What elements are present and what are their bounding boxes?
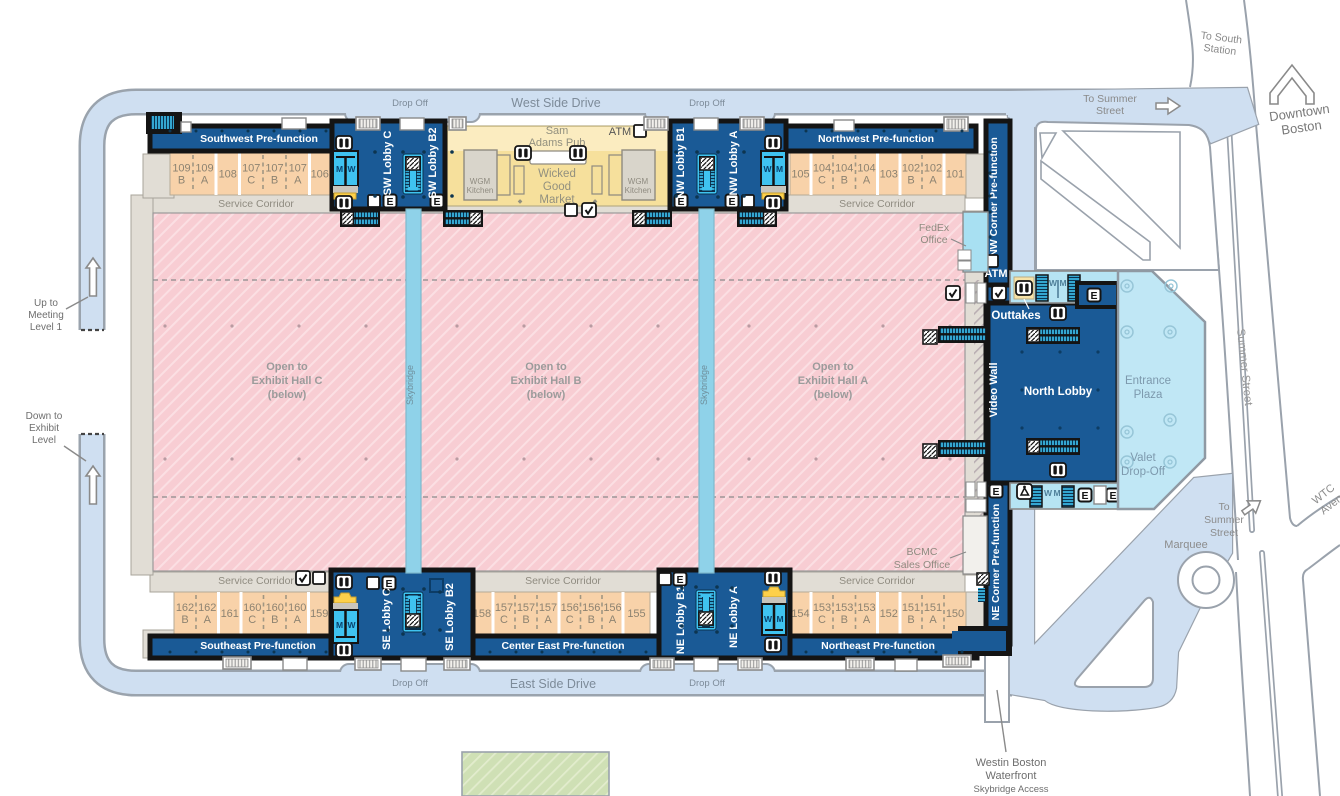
svg-text:107: 107: [242, 163, 260, 175]
svg-text:SW Lobby C: SW Lobby C: [382, 131, 394, 196]
svg-text:Office: Office: [920, 234, 947, 246]
svg-text:To: To: [1218, 501, 1229, 513]
svg-text:156: 156: [603, 602, 621, 614]
svg-text:Exhibit Hall A: Exhibit Hall A: [798, 375, 869, 387]
svg-text:Open to: Open to: [525, 361, 567, 373]
svg-text:Service Corridor: Service Corridor: [218, 198, 294, 210]
svg-text:158: 158: [473, 608, 491, 620]
svg-text:M: M: [1053, 488, 1060, 498]
svg-text:Service Corridor: Service Corridor: [839, 198, 915, 210]
svg-text:NE Lobby A: NE Lobby A: [728, 586, 740, 648]
svg-text:159: 159: [310, 608, 328, 620]
svg-text:Down to: Down to: [26, 411, 63, 422]
svg-text:Drop Off: Drop Off: [392, 98, 428, 109]
svg-text:B: B: [907, 175, 914, 187]
svg-text:150: 150: [946, 608, 964, 620]
svg-text:Northwest Pre-function: Northwest Pre-function: [818, 133, 934, 145]
svg-text:(below): (below): [814, 389, 853, 401]
svg-text:Summer: Summer: [1204, 514, 1244, 526]
svg-text:161: 161: [221, 608, 239, 620]
svg-text:E: E: [1109, 490, 1116, 502]
svg-text:156: 156: [582, 602, 600, 614]
svg-text:101: 101: [946, 169, 964, 181]
svg-text:Drop Off: Drop Off: [689, 678, 725, 689]
svg-text:Kitchen: Kitchen: [467, 186, 494, 195]
svg-text:108: 108: [219, 169, 237, 181]
svg-text:Westin Boston: Westin Boston: [976, 757, 1047, 769]
svg-text:Drop Off: Drop Off: [689, 98, 725, 109]
svg-text:SE Lobby B2: SE Lobby B2: [444, 583, 456, 651]
svg-text:160: 160: [266, 602, 284, 614]
svg-text:ATM: ATM: [609, 126, 631, 138]
svg-text:162: 162: [198, 602, 216, 614]
svg-text:W: W: [347, 620, 356, 630]
svg-text:SW Lobby B2: SW Lobby B2: [427, 128, 439, 199]
svg-text:155: 155: [627, 608, 645, 620]
svg-text:Street: Street: [1210, 527, 1238, 539]
svg-text:105: 105: [791, 169, 809, 181]
svg-text:Sam: Sam: [546, 125, 569, 137]
svg-text:A: A: [863, 175, 871, 187]
svg-text:WGM: WGM: [470, 177, 491, 186]
svg-text:104: 104: [857, 163, 875, 175]
svg-text:152: 152: [880, 608, 898, 620]
svg-text:SE Lobby C: SE Lobby C: [381, 588, 393, 650]
svg-text:Open to: Open to: [812, 361, 854, 373]
svg-text:157: 157: [495, 602, 513, 614]
svg-text:W: W: [1049, 278, 1058, 288]
svg-text:Plaza: Plaza: [1134, 389, 1163, 401]
svg-text:West Side Drive: West Side Drive: [511, 96, 600, 110]
svg-text:To Summer: To Summer: [1083, 93, 1137, 105]
svg-text:160: 160: [288, 602, 306, 614]
svg-text:Skybridge: Skybridge: [405, 365, 415, 405]
svg-text:Level: Level: [32, 435, 56, 446]
svg-text:107: 107: [289, 163, 307, 175]
svg-text:104: 104: [813, 163, 831, 175]
svg-text:B: B: [841, 614, 848, 626]
svg-text:Drop-Off: Drop-Off: [1121, 466, 1166, 478]
svg-text:Outtakes: Outtakes: [991, 310, 1040, 322]
svg-text:Southwest Pre-function: Southwest Pre-function: [200, 133, 318, 145]
svg-text:M: M: [336, 164, 343, 174]
svg-text:B: B: [178, 175, 185, 187]
svg-text:M: M: [336, 620, 343, 630]
svg-text:B: B: [522, 614, 529, 626]
svg-text:E: E: [676, 574, 683, 586]
svg-text:Center East Pre-function: Center East Pre-function: [501, 640, 624, 652]
svg-text:Kitchen: Kitchen: [625, 186, 652, 195]
svg-text:◆: ◆: [518, 199, 523, 205]
svg-text:M: M: [776, 164, 783, 174]
svg-text:A: A: [294, 175, 302, 187]
svg-text:A: A: [294, 614, 302, 626]
svg-text:(below): (below): [527, 389, 566, 401]
svg-text:Exhibit Hall B: Exhibit Hall B: [511, 375, 582, 387]
svg-text:A: A: [609, 614, 617, 626]
svg-text:W: W: [347, 164, 356, 174]
svg-text:Entrance: Entrance: [1125, 375, 1171, 387]
svg-text:102: 102: [902, 163, 920, 175]
svg-text:E: E: [1090, 290, 1097, 302]
svg-text:A: A: [929, 614, 937, 626]
svg-text:153: 153: [813, 602, 831, 614]
svg-text:Drop Off: Drop Off: [392, 678, 428, 689]
svg-text:157: 157: [539, 602, 557, 614]
svg-text:Open to: Open to: [266, 361, 308, 373]
svg-text:154: 154: [791, 608, 809, 620]
svg-text:W: W: [764, 614, 773, 624]
svg-text:156: 156: [561, 602, 579, 614]
svg-text:Service Corridor: Service Corridor: [525, 575, 601, 587]
svg-text:Wicked: Wicked: [538, 168, 576, 180]
svg-text:NE Lobby B1: NE Lobby B1: [675, 586, 687, 654]
svg-text:A: A: [929, 175, 937, 187]
svg-text:Marquee: Marquee: [1164, 539, 1207, 551]
svg-text:WGM: WGM: [628, 177, 649, 186]
svg-text:Northeast Pre-function: Northeast Pre-function: [821, 640, 935, 652]
svg-text:E: E: [728, 196, 735, 208]
svg-text:103: 103: [880, 169, 898, 181]
svg-text:NE Corner Pre-function: NE Corner Pre-function: [990, 504, 1002, 621]
svg-text:Exhibit Hall C: Exhibit Hall C: [252, 375, 323, 387]
svg-text:E: E: [992, 486, 999, 498]
svg-text:M: M: [776, 614, 783, 624]
svg-text:Skybridge: Skybridge: [699, 365, 709, 405]
svg-text:W: W: [763, 164, 772, 174]
svg-text:Waterfront: Waterfront: [986, 770, 1037, 782]
svg-text:M: M: [1059, 278, 1066, 288]
svg-text:Service Corridor: Service Corridor: [218, 575, 294, 587]
svg-text:C: C: [566, 614, 574, 626]
svg-text:107: 107: [265, 163, 283, 175]
svg-text:Level 1: Level 1: [30, 322, 63, 333]
svg-text:BCMC: BCMC: [907, 546, 938, 558]
svg-text:162: 162: [176, 602, 194, 614]
svg-text:C: C: [500, 614, 508, 626]
svg-text:E: E: [386, 196, 393, 208]
svg-text:B: B: [271, 614, 278, 626]
svg-text:Good: Good: [543, 181, 571, 193]
svg-text:153: 153: [835, 602, 853, 614]
svg-text:W: W: [1044, 488, 1053, 498]
svg-text:Meeting: Meeting: [28, 310, 64, 321]
svg-text:B: B: [588, 614, 595, 626]
svg-text:B: B: [271, 175, 278, 187]
svg-text:Sales Office: Sales Office: [894, 559, 951, 571]
svg-text:151: 151: [902, 602, 920, 614]
svg-text:Up to: Up to: [34, 298, 58, 309]
svg-text:North Lobby: North Lobby: [1024, 386, 1093, 398]
svg-text:FedEx: FedEx: [919, 222, 950, 234]
svg-text:East Side Drive: East Side Drive: [510, 677, 596, 691]
svg-text:Video Wall: Video Wall: [988, 362, 1000, 417]
svg-text:C: C: [818, 175, 826, 187]
svg-text:106: 106: [311, 169, 329, 181]
svg-text:A: A: [544, 614, 552, 626]
svg-text:Skybridge Access: Skybridge Access: [974, 784, 1049, 795]
svg-text:A: A: [863, 614, 871, 626]
svg-text:102: 102: [924, 163, 942, 175]
svg-text:Street: Street: [1096, 105, 1124, 117]
svg-text:Service Corridor: Service Corridor: [839, 575, 915, 587]
svg-text:C: C: [248, 614, 256, 626]
svg-text:Exhibit: Exhibit: [29, 423, 59, 434]
svg-text:B: B: [907, 614, 914, 626]
svg-text:E: E: [1081, 490, 1088, 502]
svg-text:A: A: [204, 614, 212, 626]
svg-text:C: C: [818, 614, 826, 626]
svg-text:NW Lobby B1: NW Lobby B1: [675, 127, 687, 199]
svg-text:NW Lobby A: NW Lobby A: [728, 130, 740, 195]
svg-text:(below): (below): [268, 389, 307, 401]
svg-text:A: A: [201, 175, 209, 187]
svg-text:151: 151: [924, 602, 942, 614]
svg-text:Valet: Valet: [1130, 452, 1156, 464]
svg-text:109: 109: [172, 163, 190, 175]
svg-text:109: 109: [195, 163, 213, 175]
svg-text:B: B: [181, 614, 188, 626]
svg-text:104: 104: [835, 163, 853, 175]
svg-text:157: 157: [517, 602, 535, 614]
svg-text:B: B: [841, 175, 848, 187]
svg-text:Southeast Pre-function: Southeast Pre-function: [200, 640, 316, 652]
svg-text:160: 160: [243, 602, 261, 614]
svg-text:C: C: [247, 175, 255, 187]
svg-text:153: 153: [857, 602, 875, 614]
